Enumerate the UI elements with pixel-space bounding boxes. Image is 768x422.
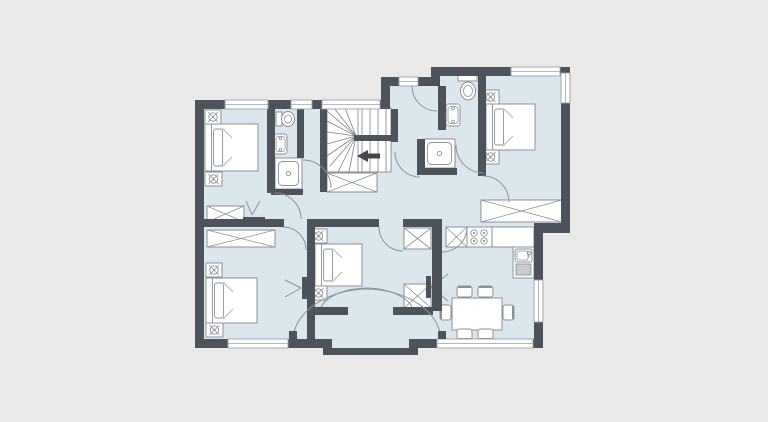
interior-wall (204, 219, 284, 227)
lamp-icon (317, 235, 319, 237)
lamp-icon (489, 156, 491, 158)
interior-wall (271, 189, 303, 195)
stove (467, 227, 492, 247)
toilet-bathroom-1 (282, 112, 295, 127)
burner-icon (473, 240, 475, 242)
lamp-icon (212, 178, 214, 180)
double-bed-bottom-left (206, 278, 257, 323)
interior-wall (432, 219, 442, 311)
double-bed-middle (315, 244, 362, 286)
exterior-wall (323, 348, 418, 355)
interior-wall (320, 109, 327, 192)
interior-wall (417, 168, 457, 175)
floor-plan (0, 0, 768, 422)
double-bed-top-left (205, 124, 258, 171)
door-leaf (289, 331, 297, 339)
interior-wall (478, 76, 486, 176)
lamp-icon (212, 116, 214, 118)
desk-bottom-left (302, 277, 307, 299)
burner-icon (483, 232, 485, 234)
burner-icon (483, 240, 485, 242)
exterior-wall (195, 100, 204, 348)
interior-wall (438, 86, 446, 130)
interior-wall (307, 219, 379, 227)
exterior-wall (543, 223, 570, 233)
door-leaf (438, 331, 446, 339)
interior-wall (297, 109, 304, 158)
shower-bathroom-1 (275, 158, 302, 189)
floor-plan-canvas (0, 0, 768, 422)
lamp-icon (317, 292, 319, 294)
interior-wall (403, 219, 433, 227)
lamp-icon (213, 269, 215, 271)
interior-wall (307, 219, 315, 339)
interior-wall (391, 109, 398, 142)
dining-table (452, 298, 502, 330)
interior-wall (307, 307, 348, 315)
toilet-bathroom-2 (461, 82, 476, 100)
double-bed-top-right (486, 104, 535, 150)
lamp-icon (489, 96, 491, 98)
burner-icon (473, 232, 475, 234)
interior-wall (267, 109, 275, 193)
dishwasher (516, 264, 531, 275)
lamp-icon (213, 329, 215, 331)
exterior-wall (409, 339, 418, 355)
desk-middle (426, 276, 431, 298)
